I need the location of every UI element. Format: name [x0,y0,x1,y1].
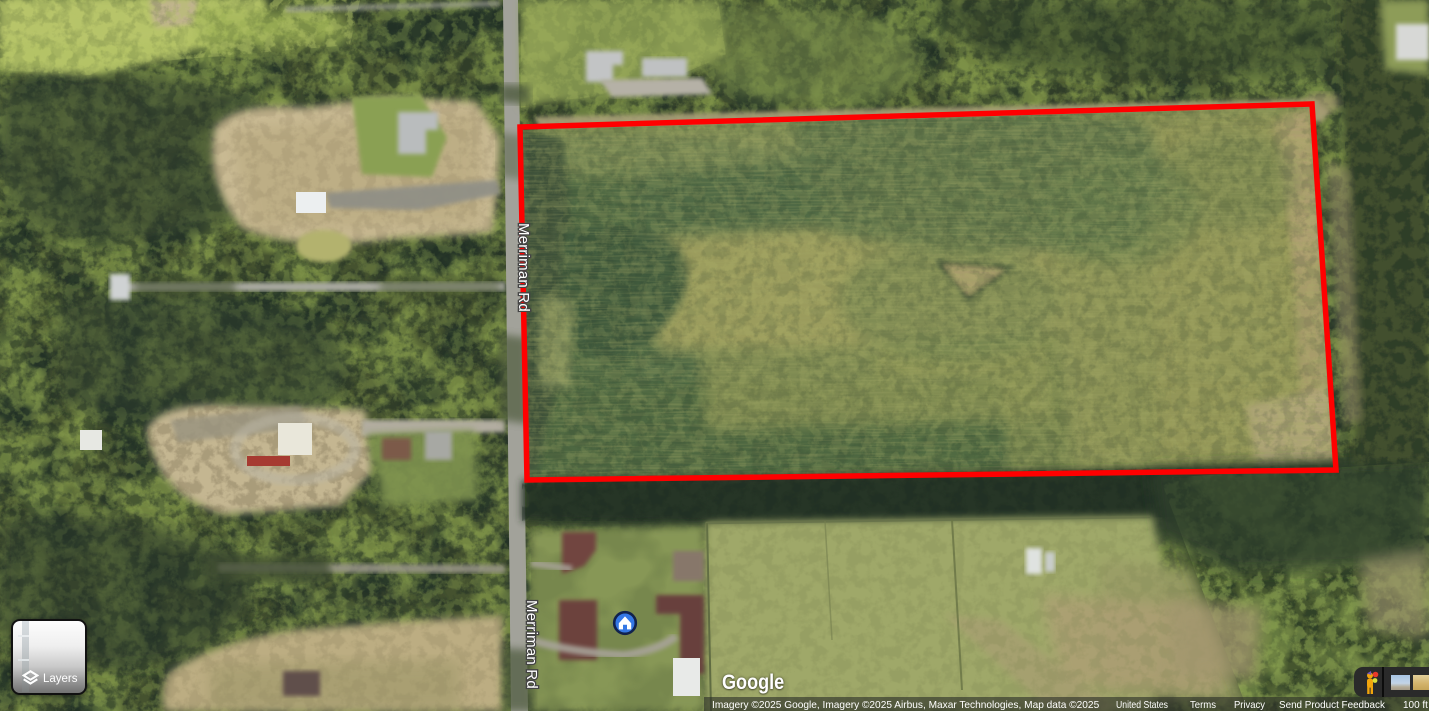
svg-text:Merriman Rd: Merriman Rd [523,600,540,689]
svg-text:Merriman Rd: Merriman Rd [515,223,532,312]
